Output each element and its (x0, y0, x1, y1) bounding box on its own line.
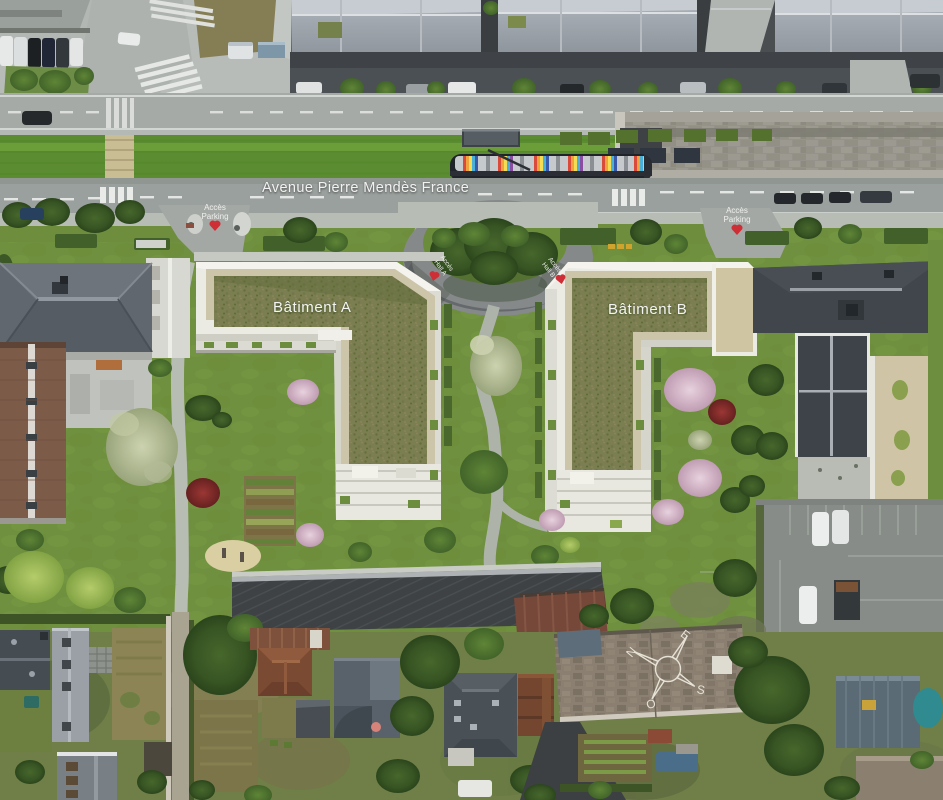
svg-text:Accès: Accès (726, 206, 748, 215)
svg-text:Accès: Accès (204, 203, 226, 212)
svg-text:Parking: Parking (201, 212, 228, 221)
svg-text:Avenue Pierre Mendès France: Avenue Pierre Mendès France (262, 180, 469, 196)
svg-text:Bâtiment A: Bâtiment A (273, 299, 352, 316)
svg-text:Bâtiment B: Bâtiment B (608, 301, 687, 318)
svg-text:Parking: Parking (723, 215, 750, 224)
